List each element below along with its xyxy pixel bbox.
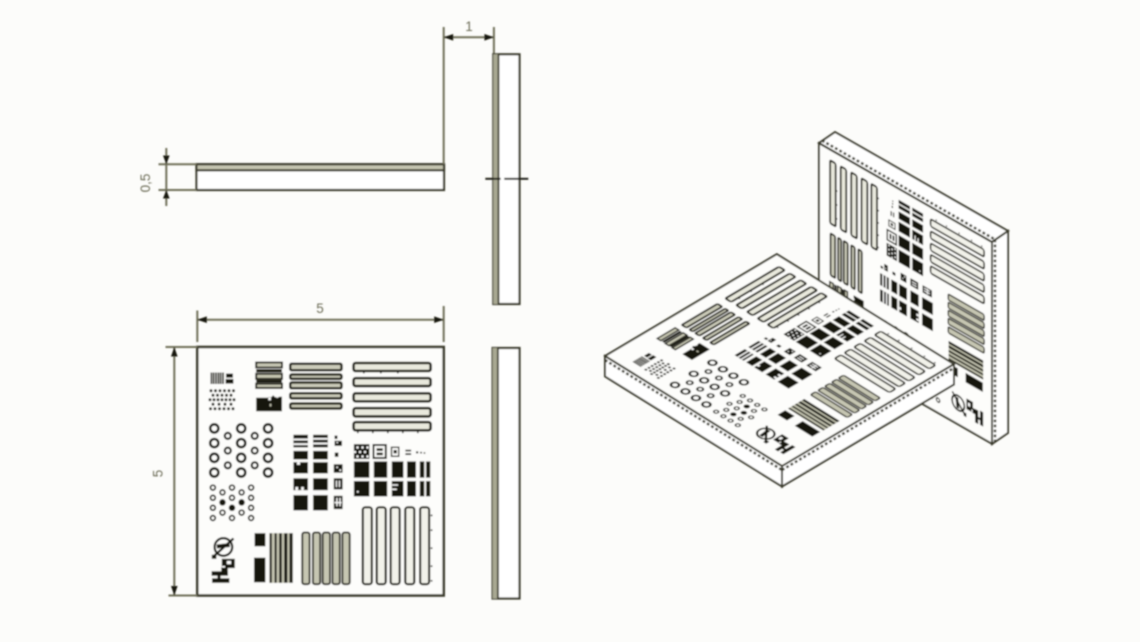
svg-text:0,5: 0,5 bbox=[138, 174, 153, 193]
svg-text:5: 5 bbox=[151, 470, 166, 478]
svg-text:1: 1 bbox=[465, 19, 473, 34]
svg-text:5: 5 bbox=[316, 301, 324, 316]
